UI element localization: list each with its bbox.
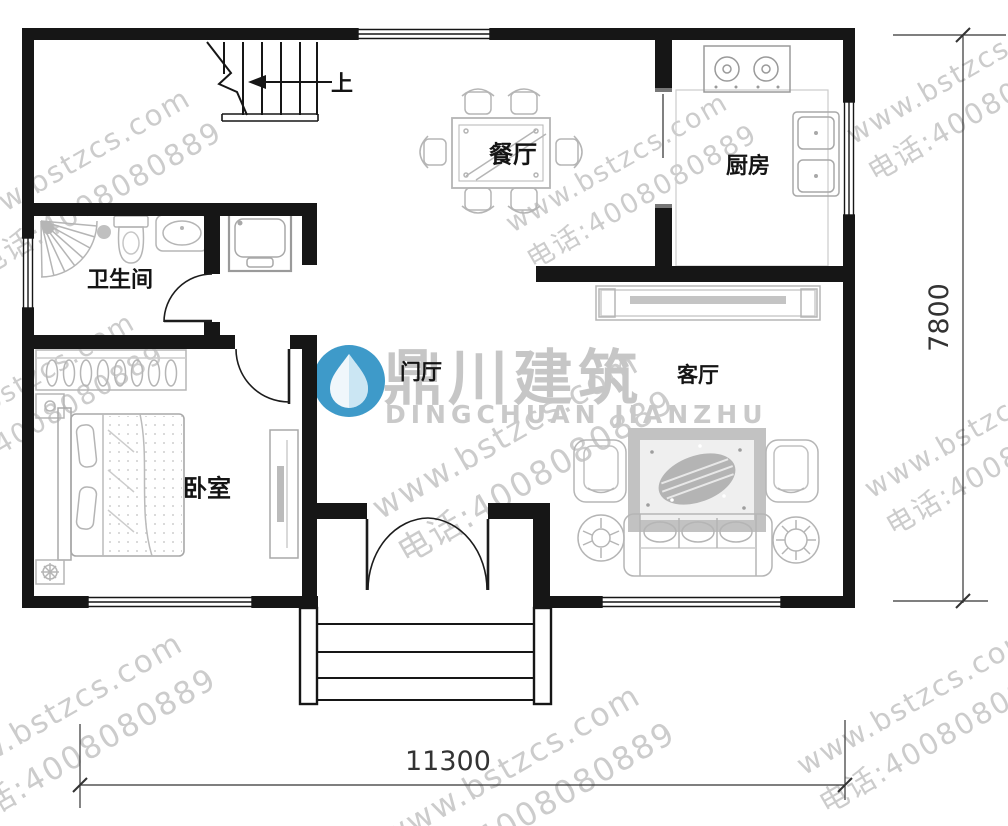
staircase (207, 42, 332, 121)
kitchen-door (655, 88, 672, 208)
living-room-furniture (574, 286, 820, 576)
stair-up-label: 上 (331, 66, 353, 98)
bedroom-furniture (36, 350, 298, 584)
plan-drawing (0, 0, 1008, 826)
porch-steps (300, 608, 551, 704)
room-label-foyer: 门厅 (400, 356, 442, 386)
dimension-width-label: 11300 (405, 746, 491, 777)
washing-machine (229, 213, 291, 271)
doors (164, 88, 672, 590)
window-bottom-bedroom (88, 596, 252, 608)
front-double-door (367, 518, 488, 590)
stair-direction-arrow (248, 75, 332, 89)
room-label-bedroom: 卧室 (183, 469, 231, 504)
room-label-living: 客厅 (677, 359, 719, 389)
floor-plan: www.bstzcs.com 电话:4008080889 www.bstzcs.… (0, 0, 1008, 826)
room-label-kitchen: 厨房 (726, 148, 770, 180)
bathroom-door (164, 274, 212, 322)
window-right-kitchen (843, 102, 855, 215)
bedroom-door (236, 349, 289, 404)
dimension-height-label: 7800 (924, 283, 955, 352)
window-bottom-living (602, 596, 781, 608)
window-top-dining (358, 28, 490, 40)
room-label-dining: 餐厅 (489, 135, 537, 170)
window-left-bathroom (22, 238, 34, 308)
room-label-bathroom: 卫生间 (87, 262, 153, 294)
